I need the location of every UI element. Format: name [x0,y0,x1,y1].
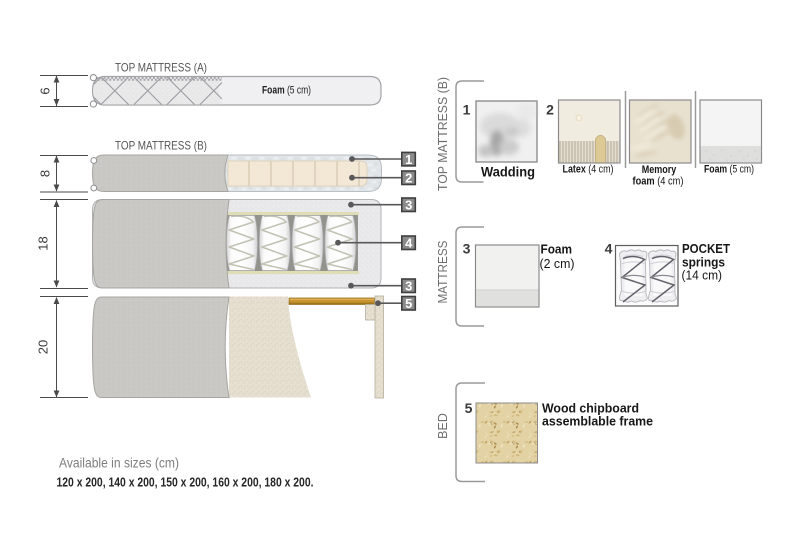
svg-text:2: 2 [546,101,554,117]
svg-text:5: 5 [465,400,473,416]
svg-text:Latex (4 cm): Latex (4 cm) [563,164,614,176]
svg-text:2: 2 [405,170,412,185]
svg-text:foam (4 cm): foam (4 cm) [633,176,684,188]
svg-text:assemblable frame: assemblable frame [542,413,653,428]
svg-text:(2 cm): (2 cm) [540,256,575,271]
svg-text:Foam: Foam [541,242,573,257]
svg-text:3: 3 [463,241,471,257]
svg-text:4: 4 [405,235,413,250]
svg-text:BED: BED [436,413,450,439]
svg-text:4: 4 [605,241,613,257]
svg-text:8: 8 [37,170,52,177]
svg-text:Foam (5 cm): Foam (5 cm) [262,85,311,97]
svg-text:MATTRESS: MATTRESS [436,241,450,304]
svg-text:TOP MATTRESS (B): TOP MATTRESS (B) [436,77,450,191]
svg-text:TOP MATTRESS (A): TOP MATTRESS (A) [115,61,207,75]
svg-text:TOP MATTRESS (B): TOP MATTRESS (B) [115,139,207,153]
svg-text:Wadding: Wadding [481,165,535,180]
svg-text:120 x 200, 140 x 200, 150 x 20: 120 x 200, 140 x 200, 150 x 200, 160 x 2… [57,476,314,490]
svg-text:Foam (5 cm): Foam (5 cm) [704,164,754,176]
svg-text:(14 cm): (14 cm) [682,268,723,283]
svg-text:1: 1 [463,101,471,117]
svg-text:3: 3 [405,197,412,212]
svg-text:18: 18 [35,236,50,250]
svg-text:6: 6 [37,87,52,94]
svg-text:Memory: Memory [642,164,677,176]
svg-text:5: 5 [405,296,412,311]
svg-text:Available in sizes (cm): Available in sizes (cm) [59,455,179,470]
svg-text:3: 3 [405,278,412,293]
svg-text:1: 1 [405,152,412,167]
svg-text:20: 20 [35,340,50,354]
